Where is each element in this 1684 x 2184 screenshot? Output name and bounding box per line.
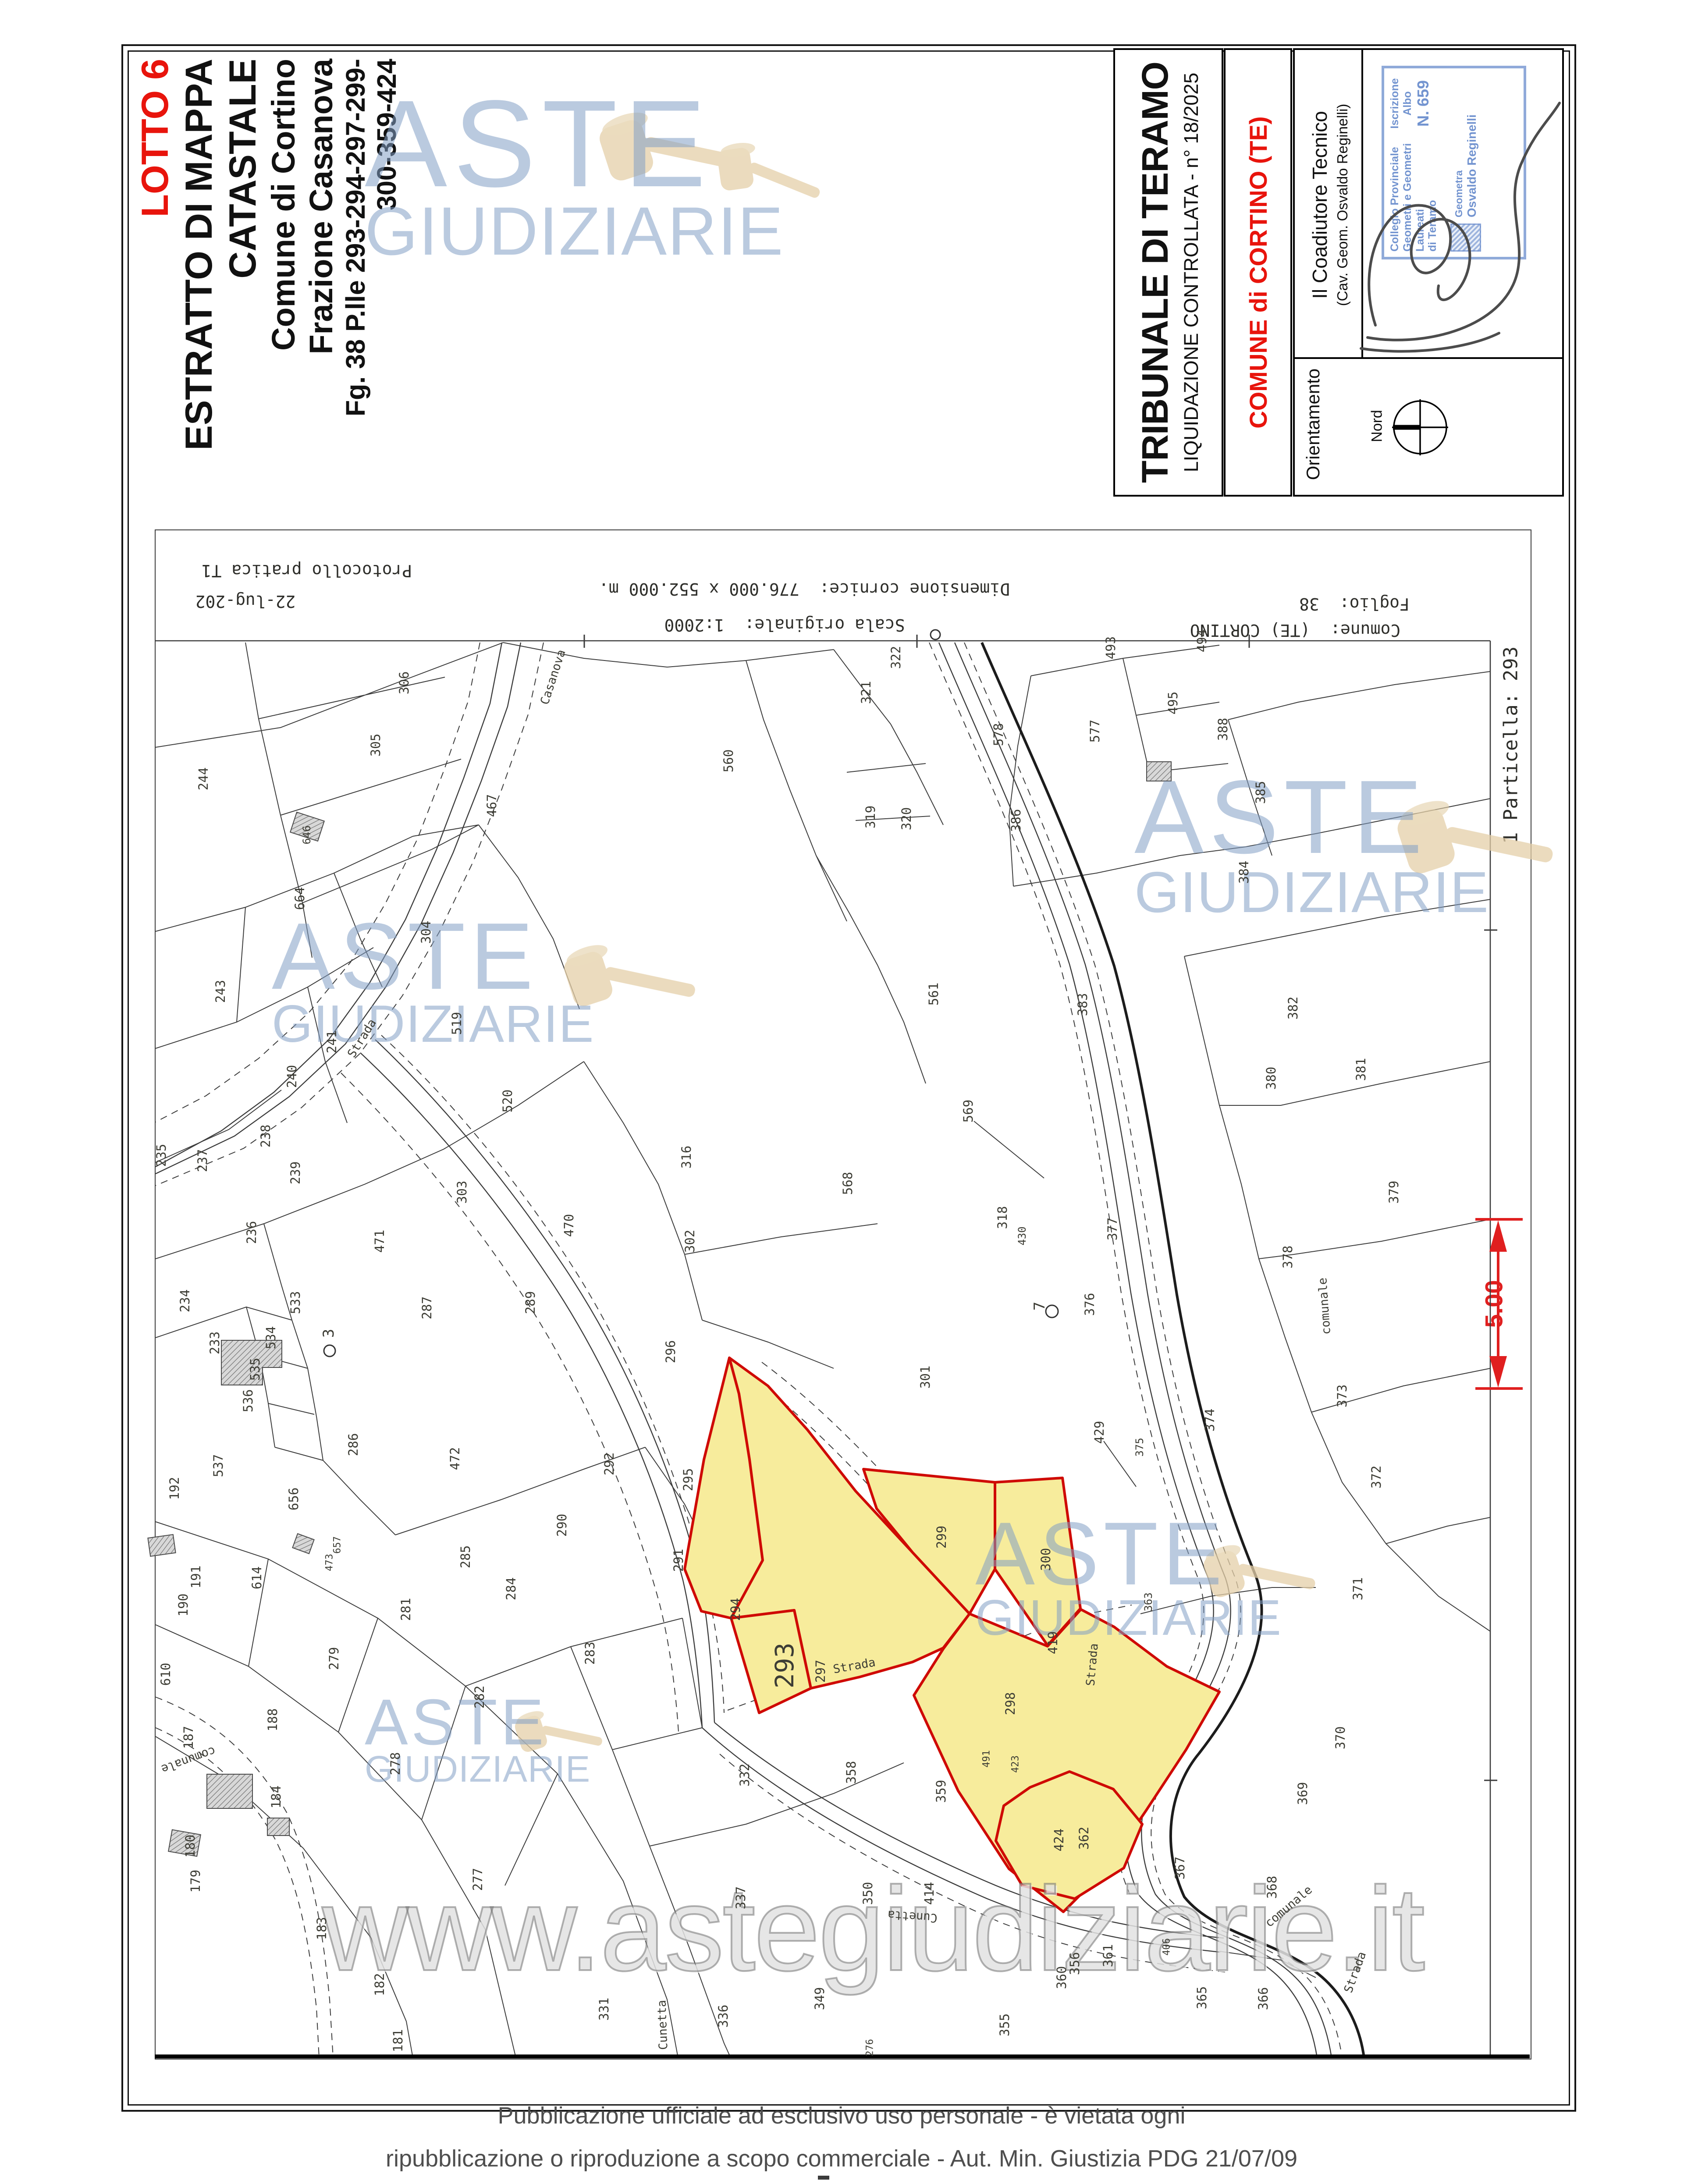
- stamp-org-line: Collegio Provinciale: [1389, 133, 1401, 252]
- case-line: LIQUIDAZIONE CONTROLLATA - n° 18/2025: [1180, 73, 1203, 472]
- stamp-org-line: Geometri e Geometri Laureati: [1401, 133, 1427, 252]
- stamp-org-line: di Teramo: [1426, 133, 1439, 252]
- sheet-frame-size: Dimensione cornice: 776.000 x 552.000 m.: [599, 579, 1010, 599]
- title-line: Fg. 38 P.lle 293-294-297-299-: [340, 59, 371, 520]
- footer-mark: [818, 2176, 829, 2180]
- technical-assistant-box: Il Coadiutore Tecnico (Cav. Geom. Osvald…: [1293, 48, 1366, 362]
- sheet-date: 22-lug-202: [195, 592, 296, 611]
- municipality-label: COMUNE di CORTINO (TE): [1244, 116, 1272, 428]
- assistant-name: (Cav. Geom. Osvaldo Reginelli): [1334, 104, 1351, 306]
- court-box: TRIBUNALE DI TERAMO LIQUIDAZIONE CONTROL…: [1113, 48, 1223, 497]
- sheet-parcel-ref: 1 Particella: 293: [1500, 646, 1522, 844]
- title-line: Comune di Cortino: [265, 59, 302, 520]
- orientation-box: [1293, 357, 1564, 497]
- sheet-municipality: Comune: (TE) CORTINO: [1190, 621, 1400, 640]
- stamp-register-label: Iscrizione Albo: [1389, 74, 1414, 133]
- stamp-title: Geometra: [1453, 114, 1465, 217]
- municipality-box: COMUNE di CORTINO (TE): [1224, 48, 1292, 497]
- sheet-scale: Scala originale: 1:2000: [664, 615, 905, 635]
- scanned-cadastral-page: LOTTO 6 ESTRATTO DI MAPPA CATASTALE Comu…: [0, 0, 1684, 2184]
- professional-stamp: Collegio Provinciale Geometri e Geometri…: [1382, 66, 1526, 259]
- footer-line2: ripubblicazione o riproduzione a scopo c…: [156, 2146, 1528, 2171]
- assistant-role: Il Coadiutore Tecnico: [1308, 111, 1332, 299]
- map-sheet-frame: [155, 529, 1531, 2060]
- lot-number: LOTTO 6: [134, 59, 178, 520]
- stamp-emblem: [1450, 224, 1481, 252]
- footer-line1: Pubblicazione ufficiale ad esclusivo uso…: [156, 2103, 1528, 2128]
- sheet-number: Foglio: 38: [1299, 594, 1410, 614]
- title-line: CATASTALE: [221, 59, 265, 520]
- title-block: LOTTO 6 ESTRATTO DI MAPPA CATASTALE Comu…: [134, 56, 471, 517]
- north-label: Nord: [1369, 410, 1386, 442]
- court-title: TRIBUNALE DI TERAMO: [1134, 62, 1176, 483]
- title-line: ESTRATTO DI MAPPA: [178, 59, 221, 520]
- stamp-register-number: N. 659: [1414, 74, 1432, 133]
- title-line: Frazione Casanova: [302, 59, 340, 520]
- sheet-protocol: Protocollo pratica T1: [202, 561, 412, 580]
- stamp-name: Osvaldo Reginelli: [1465, 114, 1479, 217]
- dimension-value: 5.00: [1480, 1280, 1508, 1328]
- orientation-label: Orientamento: [1303, 369, 1324, 480]
- title-line: 300-359-424: [371, 59, 402, 520]
